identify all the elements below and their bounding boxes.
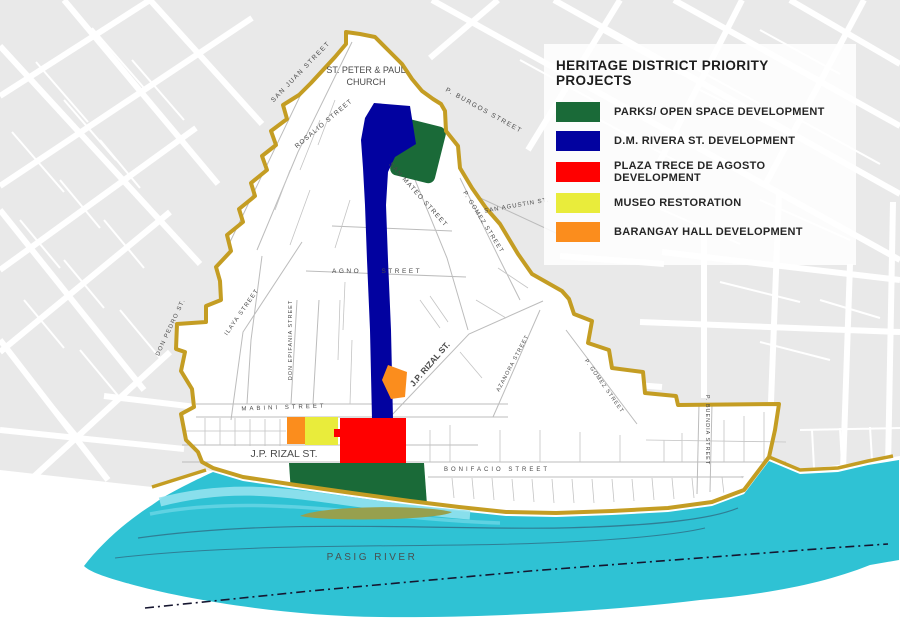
legend-item-parks: PARKS/ OPEN SPACE DEVELOPMENT [556, 102, 844, 122]
legend-label-museo: MUSEO RESTORATION [614, 197, 742, 209]
legend-swatch-museo [556, 193, 600, 213]
legend-label-dm-rivera: D.M. RIVERA ST. DEVELOPMENT [614, 135, 795, 147]
plaza-trece-de-agosto-area [334, 418, 406, 463]
street-label-agno: AGNO STREET [332, 268, 422, 275]
legend-item-barangay: BARANGAY HALL DEVELOPMENT [556, 222, 844, 242]
legend-swatch-plaza [556, 162, 600, 182]
street-label-p-buendia: P. BUENDIA STREET [704, 395, 710, 465]
legend-swatch-dm-rivera [556, 131, 600, 151]
church-label-line2: CHURCH [347, 77, 386, 87]
street-label-bonifacio: BONIFACIO STREET [444, 467, 550, 473]
legend-swatch-parks [556, 102, 600, 122]
legend-label-plaza: PLAZA TRECE DE AGOSTO DEVELOPMENT [614, 160, 844, 184]
barangay-hall-area [287, 417, 305, 444]
legend-title: HERITAGE DISTRICT PRIORITY PROJECTS [556, 58, 844, 88]
legend-item-museo: MUSEO RESTORATION [556, 193, 844, 213]
heritage-district-map: ST. PETER & PAUL CHURCH SAN JUAN STREET … [0, 0, 900, 636]
legend-item-dm-rivera: D.M. RIVERA ST. DEVELOPMENT [556, 131, 844, 151]
legend-item-plaza: PLAZA TRECE DE AGOSTO DEVELOPMENT [556, 160, 844, 184]
river-label: PASIG RIVER [327, 552, 418, 563]
street-label-jp-rizal-horizontal: J.P. RIZAL ST. [250, 448, 317, 460]
museo-area [305, 417, 338, 445]
street-label-don-epifania: DON EPIFANIA STREET [288, 300, 294, 380]
legend-panel: HERITAGE DISTRICT PRIORITY PROJECTS PARK… [544, 44, 856, 265]
church-label-line1: ST. PETER & PAUL [326, 65, 405, 75]
legend-label-parks: PARKS/ OPEN SPACE DEVELOPMENT [614, 106, 825, 118]
legend-label-barangay: BARANGAY HALL DEVELOPMENT [614, 226, 803, 238]
legend-swatch-barangay [556, 222, 600, 242]
